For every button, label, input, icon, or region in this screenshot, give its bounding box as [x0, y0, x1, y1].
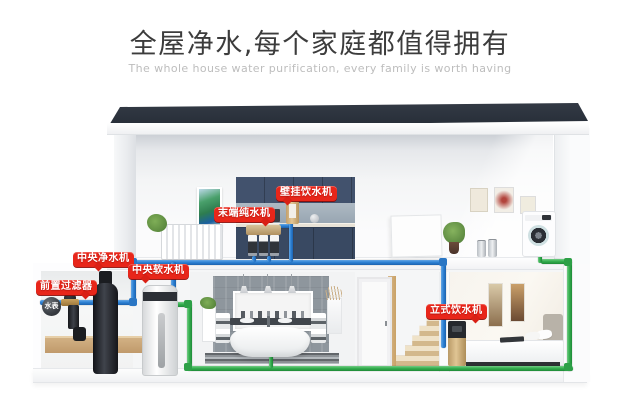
- picture-frame: [494, 187, 514, 213]
- softener-lid-band: [143, 292, 177, 301]
- grass-vase: [327, 298, 342, 334]
- pendant-lamp: [243, 274, 244, 287]
- pipe-joint: [439, 258, 447, 266]
- label-pre-filter: 前置过滤器: [36, 280, 97, 295]
- green-pipe-right-riser: [567, 261, 572, 371]
- water-softener: [142, 285, 178, 376]
- pipe-joint: [184, 300, 192, 308]
- page-subtitle: The whole house water purification, ever…: [0, 62, 640, 75]
- under-sink-purifier: [246, 225, 281, 258]
- bathtub: [230, 327, 310, 357]
- pendant-lamp: [267, 274, 268, 287]
- pipe-joint: [564, 363, 572, 371]
- label-central-purifier: 中央净水机: [73, 252, 134, 267]
- water-meter: 水表: [42, 297, 61, 316]
- tank-body: [93, 283, 118, 374]
- grass-stems: [325, 286, 342, 300]
- bedroom-art: [488, 283, 503, 327]
- label-terminal-pure-water: 末端纯水机: [214, 207, 275, 222]
- washer-display: [542, 215, 551, 220]
- label-central-softener: 中央软水机: [128, 264, 189, 279]
- blue-pipe-dispenser-drop: [289, 221, 293, 262]
- label-wall-mounted-dispenser: 壁挂饮水机: [276, 186, 337, 201]
- filter-cartridge: [248, 235, 257, 256]
- page-title: 全屋净水,每个家庭都值得拥有: [0, 22, 640, 61]
- softener-window: [158, 313, 165, 368]
- door: [357, 277, 392, 370]
- towel-stool: [311, 313, 326, 343]
- filter-cartridge: [259, 235, 268, 256]
- laundry-bin: [477, 240, 486, 257]
- leaning-canvas: [390, 214, 442, 257]
- sink: [240, 318, 254, 323]
- washing-machine: [522, 211, 556, 257]
- bathroom-niche: [233, 291, 313, 331]
- label-standing-dispenser: 立式饮水机: [426, 304, 487, 319]
- central-purifier-tank: [93, 271, 118, 374]
- potted-plant: [443, 222, 465, 244]
- green-pipe-bottom: [187, 366, 573, 371]
- right-facade: [554, 128, 590, 264]
- kettle: [310, 214, 319, 223]
- pre-filter-device: [60, 292, 88, 342]
- filter-cartridge: [270, 235, 279, 256]
- washer-door: [528, 225, 549, 246]
- dispenser-slot: [452, 326, 462, 332]
- door-knob: [385, 321, 387, 326]
- laundry-bin: [488, 239, 497, 257]
- green-pipe-down: [187, 304, 192, 370]
- pre-filter-cup: [73, 327, 86, 341]
- picture-frame: [470, 188, 488, 212]
- pipe-joint: [129, 298, 137, 306]
- pipe-joint: [564, 258, 572, 266]
- kitchen-plant: [147, 214, 167, 232]
- towel-stool: [215, 313, 230, 343]
- purifier-manifold: [246, 225, 281, 235]
- plant-pot: [449, 242, 459, 254]
- radiator-bench: [161, 224, 223, 260]
- sink: [278, 318, 292, 323]
- bedroom-art: [510, 283, 525, 322]
- floor-plant: [202, 306, 216, 342]
- floor-plant-leaves: [200, 297, 216, 309]
- left-exterior-wall: [114, 132, 136, 260]
- pendant-lamp: [291, 274, 292, 287]
- standing-water-dispenser: [448, 321, 466, 366]
- pre-filter-body: [68, 305, 79, 329]
- roof-fascia: [107, 123, 589, 135]
- dispenser-face: [289, 204, 296, 218]
- promo-image: 全屋净水,每个家庭都值得拥有 The whole house water pur…: [0, 0, 640, 402]
- pipe-joint: [184, 363, 192, 371]
